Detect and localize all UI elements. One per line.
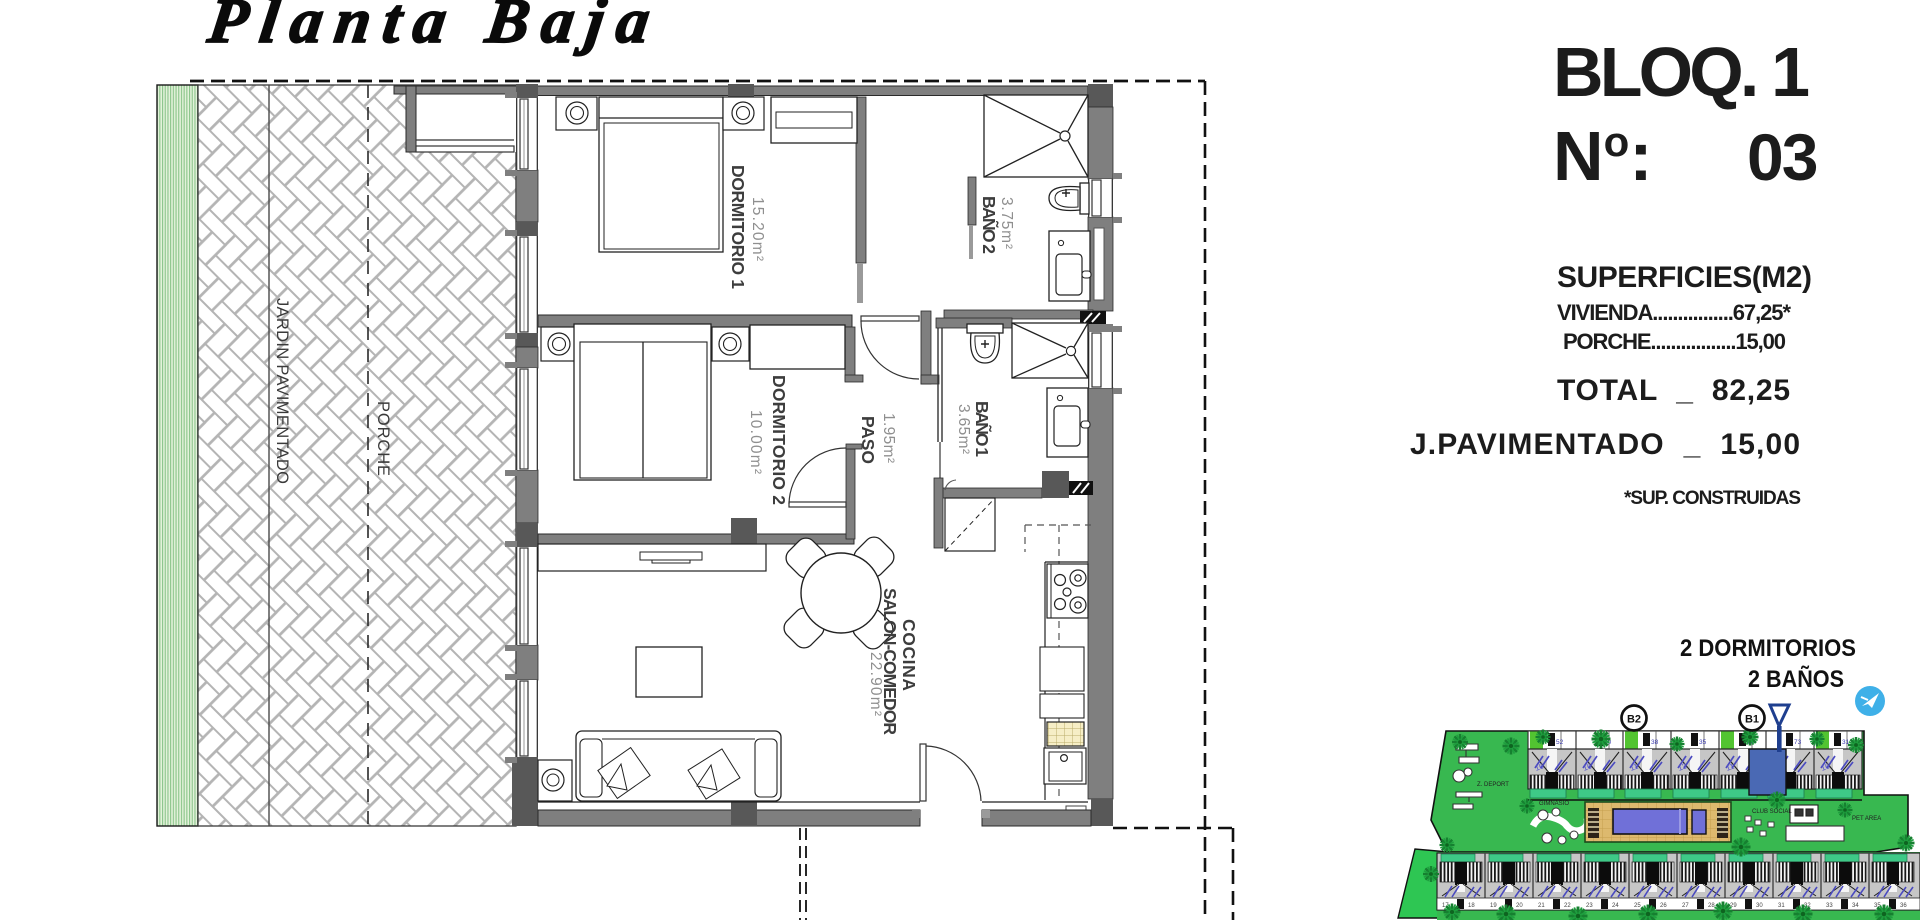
svg-text:30: 30 bbox=[1756, 903, 1763, 909]
svg-text:B2: B2 bbox=[1627, 714, 1641, 726]
svg-text:33: 33 bbox=[1826, 903, 1833, 909]
svg-text:3.65m²: 3.65m² bbox=[955, 404, 972, 454]
svg-text:J.PAVIMENTADO _ 15,00: J.PAVIMENTADO _ 15,00 bbox=[1410, 428, 1800, 461]
svg-text:3.75m²: 3.75m² bbox=[998, 197, 1015, 249]
svg-text:21: 21 bbox=[1538, 903, 1545, 909]
svg-text:PORCHE: PORCHE bbox=[374, 401, 392, 477]
svg-text:VIVIENDA................67,25*: VIVIENDA................67,25* bbox=[1557, 300, 1791, 325]
svg-text:35: 35 bbox=[1699, 739, 1707, 746]
svg-text:Z. DEPORT: Z. DEPORT bbox=[1477, 782, 1509, 788]
svg-text:22: 22 bbox=[1564, 903, 1571, 909]
svg-text:1.95m²: 1.95m² bbox=[880, 413, 897, 463]
svg-text:25: 25 bbox=[1634, 903, 1641, 909]
svg-text:19: 19 bbox=[1490, 903, 1497, 909]
svg-text:COCINA: COCINA bbox=[899, 619, 919, 691]
svg-text:38: 38 bbox=[1651, 739, 1659, 746]
svg-text:10.00m²: 10.00m² bbox=[747, 410, 764, 474]
svg-text:31: 31 bbox=[1778, 903, 1785, 909]
svg-text:24: 24 bbox=[1612, 903, 1619, 909]
svg-text:TOTAL _ 82,25: TOTAL _ 82,25 bbox=[1557, 374, 1790, 407]
svg-text:CLUB SOCIAL: CLUB SOCIAL bbox=[1752, 809, 1792, 815]
svg-text:PORCHE.................15,00: PORCHE.................15,00 bbox=[1563, 329, 1786, 354]
svg-text:18: 18 bbox=[1468, 903, 1475, 909]
svg-text:PET AREA: PET AREA bbox=[1852, 816, 1881, 822]
svg-text:No:: No: bbox=[1553, 117, 1653, 195]
svg-text:23: 23 bbox=[1586, 903, 1593, 909]
svg-text:73: 73 bbox=[1794, 739, 1802, 746]
svg-text:JARDIN PAVIMENTADO: JARDIN PAVIMENTADO bbox=[273, 298, 291, 485]
svg-text:GIMNASIO: GIMNASIO bbox=[1539, 801, 1569, 807]
svg-text:BLOQ. 1: BLOQ. 1 bbox=[1553, 33, 1812, 111]
svg-text:15.20m²: 15.20m² bbox=[749, 197, 766, 261]
svg-text:DORMITORIO 2: DORMITORIO 2 bbox=[769, 375, 789, 505]
svg-text:26: 26 bbox=[1660, 903, 1667, 909]
svg-text:SUPERFICIES(M2): SUPERFICIES(M2) bbox=[1557, 261, 1812, 294]
svg-text:27: 27 bbox=[1682, 903, 1689, 909]
svg-text:20: 20 bbox=[1516, 903, 1523, 909]
svg-text:PASO: PASO bbox=[858, 416, 878, 464]
svg-text:36: 36 bbox=[1900, 903, 1907, 909]
svg-text:52: 52 bbox=[1556, 739, 1564, 746]
svg-text:34: 34 bbox=[1852, 903, 1859, 909]
svg-text:2 DORMITORIOS: 2 DORMITORIOS bbox=[1680, 635, 1856, 662]
svg-text:DORMITORIO 1: DORMITORIO 1 bbox=[728, 165, 748, 289]
svg-text:22.90m²: 22.90m² bbox=[867, 652, 884, 716]
svg-text:BAÑO 2: BAÑO 2 bbox=[979, 196, 1000, 254]
svg-text:B1: B1 bbox=[1745, 714, 1759, 726]
svg-text:*SUP. CONSTRUIDAS: *SUP. CONSTRUIDAS bbox=[1624, 488, 1801, 509]
svg-text:2 BAÑOS: 2 BAÑOS bbox=[1748, 665, 1844, 693]
svg-text:03: 03 bbox=[1747, 120, 1817, 194]
svg-text:BAÑO 1: BAÑO 1 bbox=[972, 401, 993, 457]
